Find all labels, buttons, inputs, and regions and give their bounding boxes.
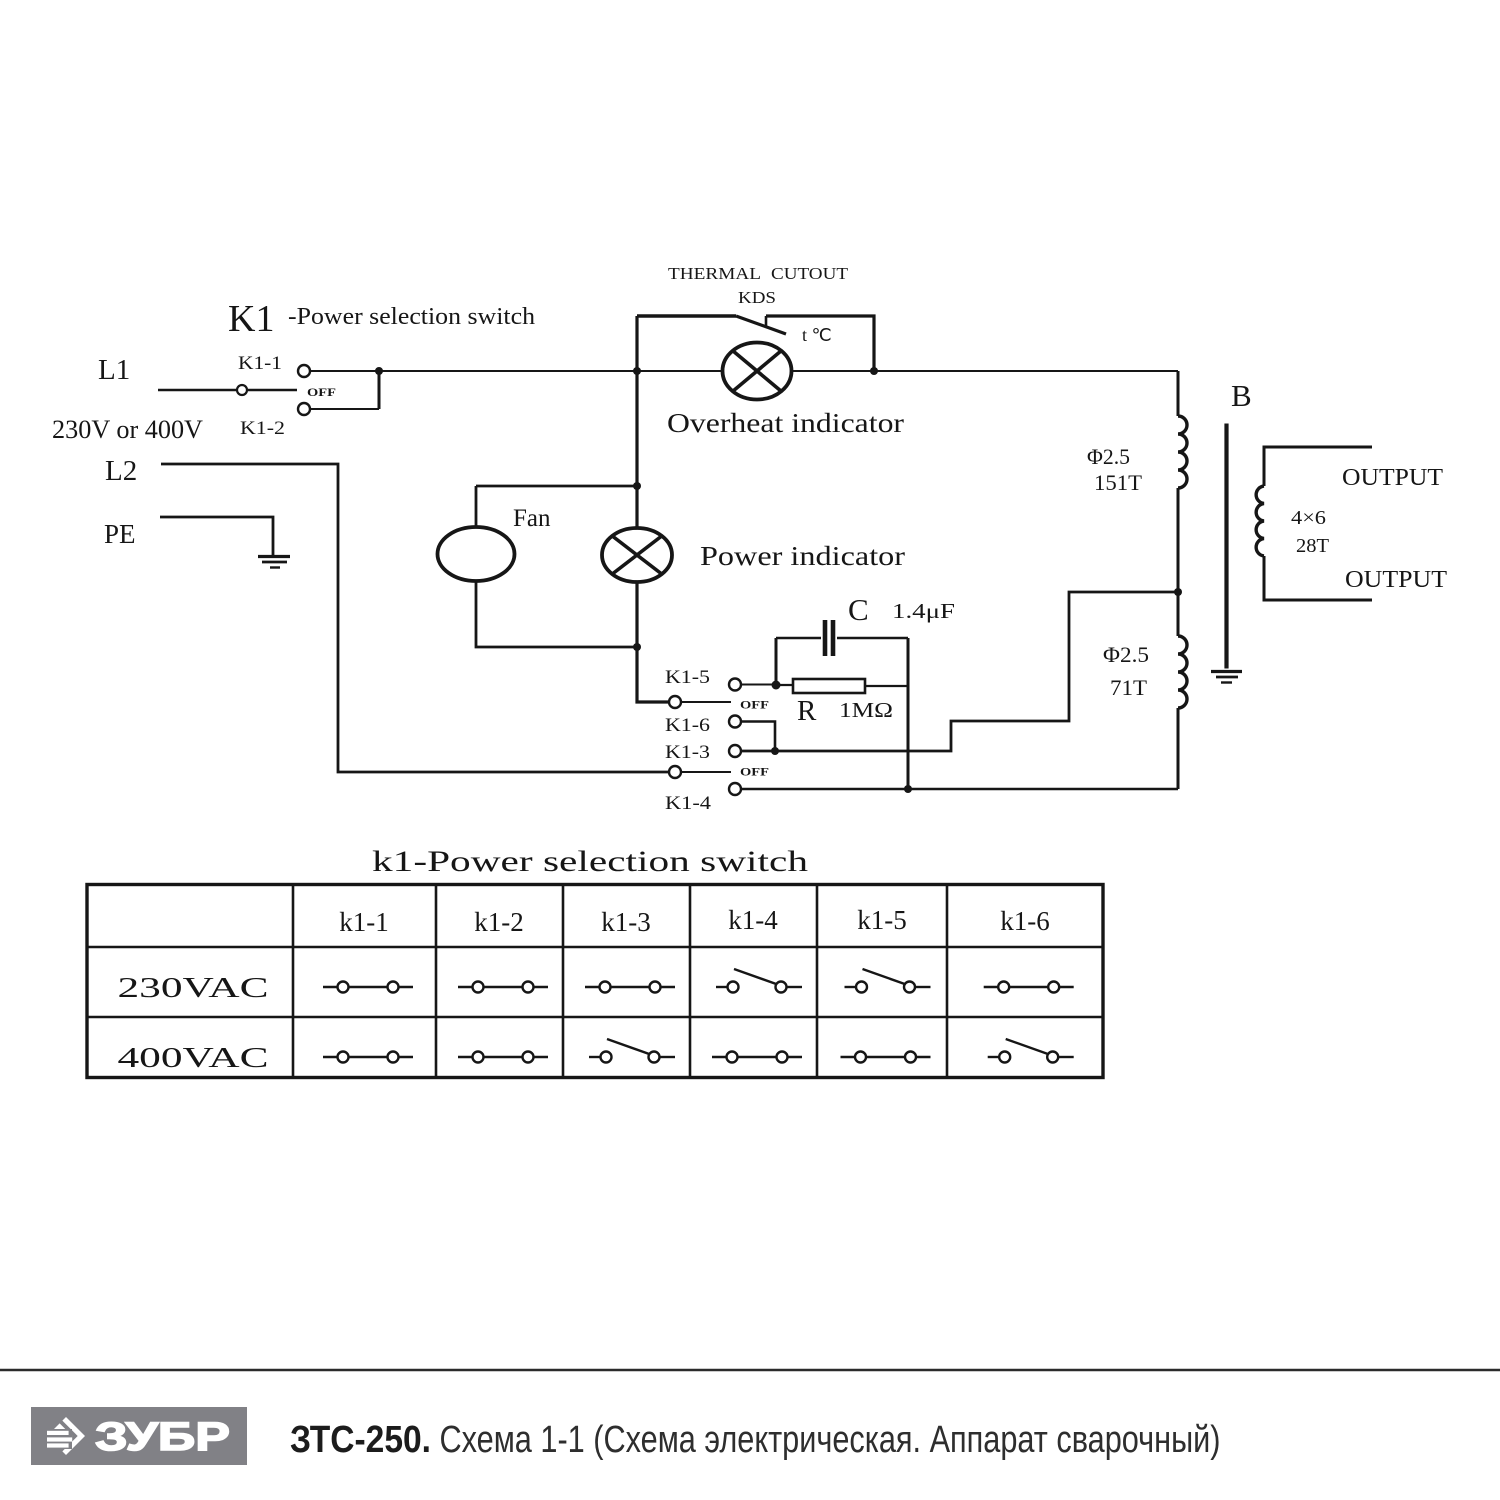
- svg-text:4×6: 4×6: [1291, 507, 1326, 529]
- svg-text:k1-Power selection switch: k1-Power selection switch: [372, 845, 808, 878]
- svg-text:B: B: [1231, 378, 1252, 413]
- svg-text:1.4μF: 1.4μF: [892, 599, 955, 623]
- svg-text:ЗТС-250.: ЗТС-250.: [290, 1419, 431, 1461]
- svg-text:L2: L2: [105, 455, 137, 487]
- svg-text:k1-6: k1-6: [1000, 906, 1050, 936]
- svg-text:K1-5: K1-5: [665, 667, 710, 688]
- svg-text:t ℃: t ℃: [802, 325, 832, 345]
- svg-text:OUTPUT: OUTPUT: [1342, 465, 1443, 491]
- svg-text:PE: PE: [104, 519, 136, 549]
- svg-text:Power indicator: Power indicator: [700, 541, 905, 571]
- svg-text:Φ2.5: Φ2.5: [1087, 444, 1130, 469]
- svg-text:OFF: OFF: [307, 385, 336, 399]
- svg-text:151T: 151T: [1094, 470, 1143, 495]
- svg-text:k1-2: k1-2: [474, 907, 524, 937]
- svg-text:k1-4: k1-4: [728, 905, 778, 935]
- svg-text:ЗУБР: ЗУБР: [95, 1415, 230, 1459]
- svg-text:28T: 28T: [1296, 535, 1329, 557]
- svg-text:Fan: Fan: [513, 505, 551, 532]
- svg-text:Φ2.5: Φ2.5: [1103, 642, 1149, 667]
- svg-text:K1: K1: [228, 298, 274, 340]
- svg-text:R: R: [797, 695, 817, 727]
- svg-text:k1-5: k1-5: [857, 905, 907, 935]
- svg-text:Overheat indicator: Overheat indicator: [667, 408, 904, 438]
- svg-text:THERMAL: THERMAL: [668, 264, 761, 283]
- svg-text:Схема 1-1 (Схема электрическая: Схема 1-1 (Схема электрическая. Аппарат …: [440, 1419, 1221, 1461]
- svg-text:OUTPUT: OUTPUT: [1345, 567, 1447, 593]
- svg-text:L1: L1: [98, 354, 130, 386]
- svg-text:400VAC: 400VAC: [118, 1042, 269, 1074]
- svg-text:K1-3: K1-3: [665, 742, 710, 763]
- svg-text:230V or 400V: 230V or 400V: [52, 415, 203, 444]
- svg-text:71T: 71T: [1110, 675, 1148, 700]
- svg-text:CUTOUT: CUTOUT: [771, 264, 849, 283]
- svg-text:1MΩ: 1MΩ: [839, 698, 893, 722]
- svg-text:C: C: [848, 592, 869, 627]
- svg-text:k1-3: k1-3: [601, 907, 651, 937]
- svg-text:OFF: OFF: [740, 765, 769, 779]
- svg-text:K1-6: K1-6: [665, 715, 710, 736]
- svg-text:k1-1: k1-1: [339, 907, 389, 937]
- svg-text:-Power selection switch: -Power selection switch: [288, 304, 535, 330]
- svg-text:KDS: KDS: [738, 288, 776, 307]
- svg-text:OFF: OFF: [740, 698, 769, 712]
- svg-text:K1-4: K1-4: [665, 793, 712, 814]
- svg-text:K1-2: K1-2: [240, 418, 285, 439]
- svg-text:K1-1: K1-1: [238, 353, 282, 374]
- svg-text:230VAC: 230VAC: [118, 972, 269, 1004]
